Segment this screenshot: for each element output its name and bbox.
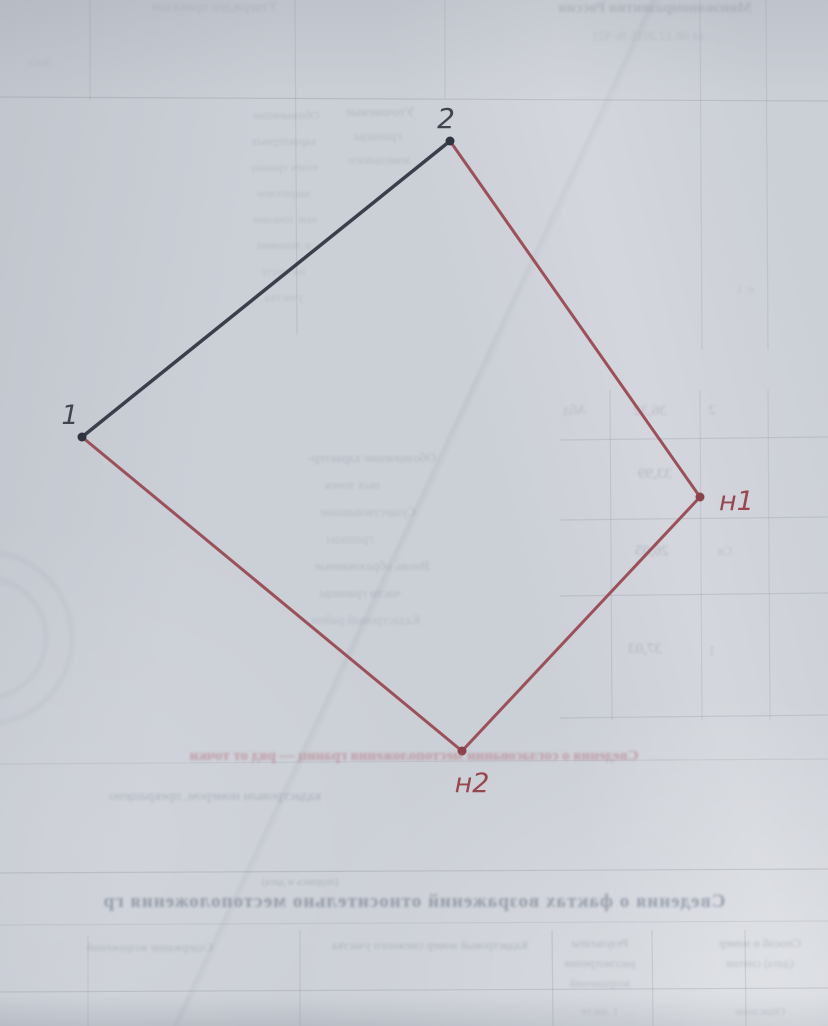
bleedthrough-text: (дата) снятия	[726, 956, 793, 971]
bleedthrough-text: Минэкономразвития России	[558, 0, 751, 17]
bleedthrough-text: рассмотрения	[565, 956, 636, 971]
bleedthrough-text: границы	[354, 128, 401, 144]
bleedthrough-text: Обозначение характер-	[308, 450, 436, 466]
bleedthrough-text: от 08.12.2015 № 921	[592, 28, 704, 44]
bleedthrough-text: границы	[326, 531, 373, 547]
bleedthrough-text: 33,99	[638, 466, 672, 483]
bleedthrough-text: Кадастровый номер смежного участка	[332, 938, 528, 953]
bleedthrough-text: Лист	[27, 55, 52, 70]
bleedthrough-text: части границы	[319, 585, 400, 601]
bleedthrough-text: Абд	[563, 403, 586, 419]
bleedthrough-text: земельного	[349, 152, 411, 168]
bleedthrough-text: Результаты	[572, 936, 629, 951]
bleedthrough-text: Существовавшие	[320, 504, 416, 520]
bleedthrough-text: 2	[709, 403, 716, 419]
bleedthrough-text: кадастровым номером, прекращено	[109, 789, 321, 805]
bleedthrough-text: 36,32	[633, 403, 667, 420]
bleedthrough-text: участка	[265, 290, 304, 305]
bleedthrough-text: 1	[709, 643, 716, 659]
bleedthrough-text: Описание	[735, 1004, 785, 1019]
bleedthrough-text: и линиями	[257, 238, 311, 253]
bleedthrough-text: Обозначение	[253, 108, 319, 123]
bleedthrough-text: 1 листе	[581, 1004, 618, 1019]
bleedthrough-text: закреплен-	[255, 186, 310, 201]
bleedthrough-text: (подпись и дата)	[261, 876, 338, 888]
bleedthrough-text: ные точками	[253, 212, 318, 227]
bleedthrough-text: возражений	[570, 976, 630, 991]
bleedthrough-text: Сведения о согласовании местоположения г…	[190, 748, 639, 765]
bleedthrough-text: на месте	[261, 264, 305, 279]
bleedthrough-text: 26,05	[635, 543, 669, 560]
bleedthrough-text: Вновь образованные	[315, 558, 430, 574]
bleedthrough-text: Способ и номер	[719, 936, 801, 951]
bleedthrough-text: характерных	[251, 134, 316, 149]
bleedthrough-text: Сведения о фактах возражений относительн…	[103, 891, 726, 913]
bleedthrough-layer: Утвержден приказомМинэкономразвития Росс…	[0, 0, 828, 1026]
document-photo: 12н1н2 Утвержден приказомМинэкономразвит…	[0, 0, 828, 1026]
bleedthrough-text: точек границ	[252, 160, 318, 175]
bleedthrough-text: 37,03	[628, 641, 662, 658]
bleedthrough-text: Содержание возражений	[87, 940, 213, 955]
bleedthrough-text: Утвержден приказом	[152, 0, 278, 16]
bleedthrough-text: Уточняемые	[346, 104, 415, 120]
bleedthrough-text: ных точек	[324, 477, 380, 493]
bleedthrough-text: Є 1	[737, 283, 754, 298]
bleedthrough-text: Св	[718, 543, 733, 559]
bleedthrough-text: Кадастровый район	[311, 612, 420, 628]
